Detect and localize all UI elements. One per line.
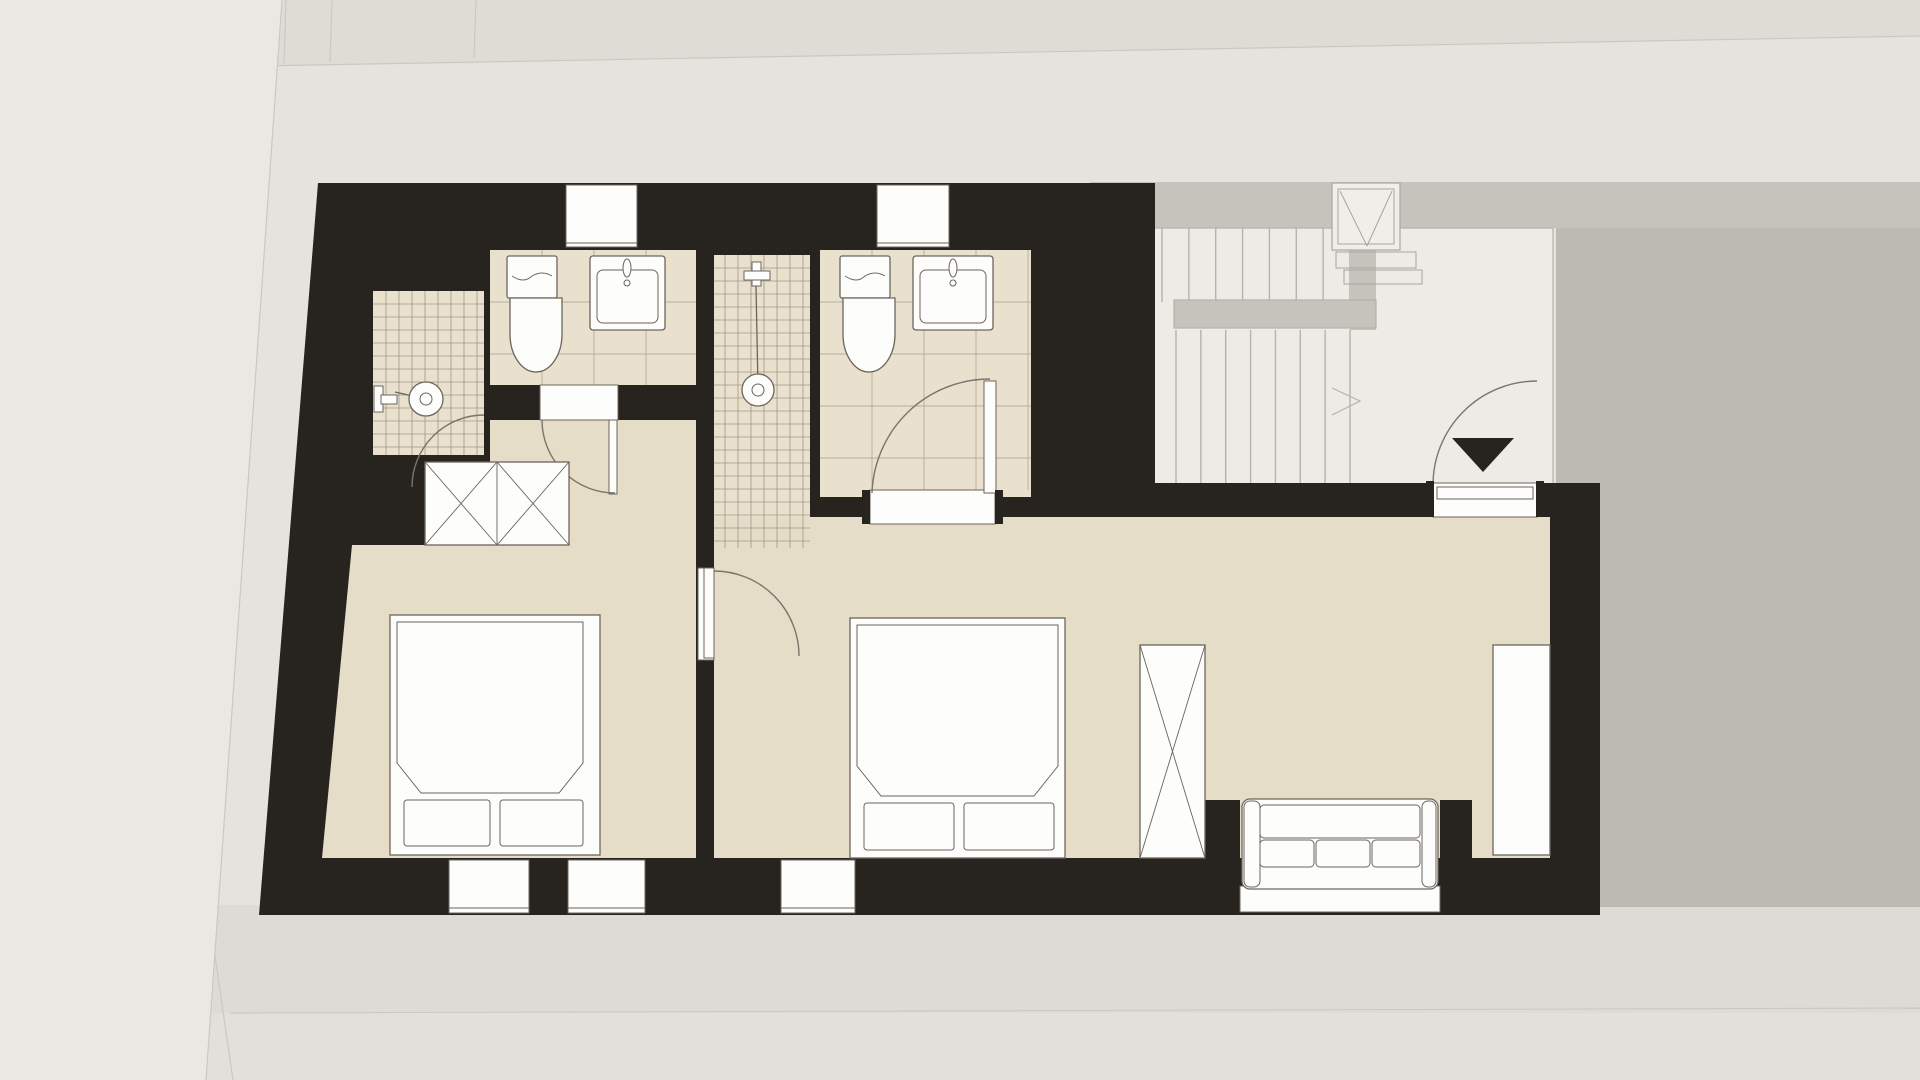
shower-1-rose-center — [420, 393, 432, 405]
stair-rail-horizontal — [1174, 300, 1376, 328]
shower-2-rose-center — [752, 384, 764, 396]
wall-sofa-stub-left — [1205, 800, 1240, 915]
sink-1-faucet-icon — [623, 259, 631, 277]
sofa-arm-right — [1422, 801, 1436, 887]
wall-sofa-stub-right — [1440, 800, 1472, 915]
bathroom-1-door-leaf — [609, 420, 617, 494]
bathroom-2-jamb-left — [862, 490, 870, 524]
window-bottom-2 — [568, 860, 645, 913]
entry-door-leaf — [1437, 487, 1533, 499]
closet-right — [1493, 645, 1550, 855]
floor-plan-canvas — [0, 0, 1920, 1080]
french-window-sofa — [1240, 886, 1440, 912]
toilet-1-bowl-icon — [510, 298, 562, 372]
entry-jamb-right — [1536, 481, 1544, 517]
sofa-cushion-3 — [1372, 840, 1420, 867]
toilet-1-tank-icon — [507, 256, 557, 298]
shaft-outer — [1332, 183, 1400, 250]
shower-2-arm — [744, 271, 770, 280]
floor-plan-drawing — [0, 0, 1920, 1080]
sink-1-drain — [624, 280, 630, 286]
ground-strip-lower — [0, 1013, 1920, 1080]
sink-2-basin — [920, 270, 986, 323]
bed-1-pillow-right — [500, 800, 583, 846]
bed-1 — [390, 615, 600, 855]
sink-2-faucet-icon — [949, 259, 957, 277]
wall-bedroom-divider — [696, 248, 714, 860]
toilet-2-bowl-icon — [843, 298, 895, 372]
window-bottom-1 — [449, 860, 529, 913]
wardrobe-living — [1140, 645, 1205, 858]
stair-hall-top-band — [1090, 182, 1920, 228]
bedroom-door-leaf — [704, 568, 714, 658]
bed-2-pillow-left — [864, 803, 954, 850]
entry-jamb-left — [1426, 481, 1434, 517]
window-bottom-3 — [781, 860, 855, 913]
ground-strip-upper — [0, 905, 1920, 1013]
bed-1-pillow-left — [404, 800, 490, 846]
wardrobe-bedroom-1 — [425, 462, 569, 545]
bed-2-pillow-right — [964, 803, 1054, 850]
bathroom-1-threshold — [540, 385, 618, 420]
bathroom-2-door-leaf — [984, 381, 996, 493]
sink-1-basin — [597, 270, 658, 323]
bed-2-duvet — [857, 625, 1058, 796]
sink-2-drain — [950, 280, 956, 286]
bathroom-2-threshold — [870, 490, 995, 524]
bathroom-2-jamb-right — [995, 490, 1003, 524]
toilet-2-tank-icon — [840, 256, 890, 298]
bed-1-duvet — [397, 622, 583, 793]
sofa-cushion-2 — [1316, 840, 1370, 867]
sofa-cushion-1 — [1260, 840, 1314, 867]
window-top-1 — [566, 185, 637, 247]
shower-1-arm — [381, 395, 397, 404]
shower-1-floor — [373, 291, 484, 455]
window-top-2 — [877, 185, 949, 247]
sofa-back — [1260, 805, 1420, 838]
bed-2 — [850, 618, 1065, 858]
sofa — [1242, 799, 1438, 889]
terrace-gray-field — [1556, 182, 1920, 907]
sofa-arm-left — [1244, 801, 1260, 887]
